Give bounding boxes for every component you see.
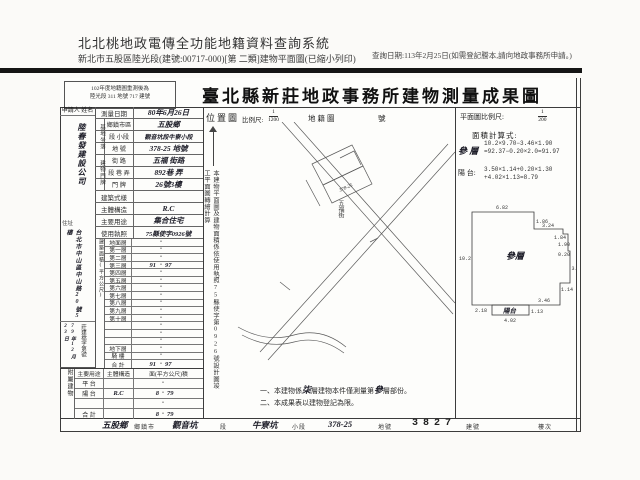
- annex-row: 陽 台 R.C 8 • 79: [75, 389, 203, 399]
- row-value: 75縣使字0926號: [133, 227, 203, 238]
- row-lane: 段 巷 弄 892巷 弄: [95, 167, 203, 179]
- floor-row: 第十層•: [105, 315, 203, 323]
- dim-top2: 3.24: [542, 223, 554, 229]
- row-value: R.C: [133, 203, 203, 214]
- row-structure: 主體構造 R.C: [95, 203, 203, 215]
- decimal-dot: •: [157, 323, 165, 328]
- document-title: 臺北縣新莊地政事務所建物測量成果圖: [172, 82, 572, 107]
- row-value: 80年6月26日: [133, 107, 203, 118]
- remark-line1: 102年度地籍圖重測後為: [65, 85, 175, 93]
- area-int: [131, 269, 157, 276]
- area-int: 91: [131, 262, 157, 269]
- bottom-id-strip: 五股鄉 鄉鎮市 觀音坑 段 牛寮坑 小段 378-25 地號 3827 建號 樓…: [60, 418, 580, 432]
- row-value: [133, 191, 203, 202]
- decimal-dot: •: [159, 401, 167, 406]
- lot-number-label: 地號: [378, 422, 392, 431]
- area-int: [131, 307, 157, 314]
- floor-level-label: 樓次: [538, 422, 552, 431]
- section-label: 段: [220, 422, 227, 431]
- screen: 北北桃地政電傳全功能地籍資料查詢系統 新北市五股區陸光段(建號:00717-00…: [0, 0, 640, 480]
- formula-line: +4.02×1.13=8.79: [484, 174, 552, 182]
- decimal-dot: •: [157, 240, 165, 245]
- row-value: 觀音坑段牛寮小段: [133, 131, 203, 142]
- receipt-block: 79年12月23日 莊建檔字第號: [60, 321, 95, 368]
- applicant-header: 申請人 姓名: [60, 107, 95, 116]
- calc-balcony-formula: 3.50×1.14+0.20×1.30 +4.02×1.13=8.79: [484, 166, 552, 182]
- row-survey-date: 測量日期 80年6月26日: [95, 107, 203, 119]
- query-info-line: 新北市五股區陸光段(建號:00717-000)[第 二類]建物平面圖(已縮小列印…: [78, 52, 356, 65]
- dim-bottom: 3.46: [538, 298, 550, 304]
- map-road-label: 五福街: [337, 200, 344, 219]
- decimal-dot: •: [157, 362, 165, 367]
- area-dec: 97: [165, 361, 203, 368]
- decimal-dot: •: [157, 285, 165, 290]
- separator-bar: [0, 68, 582, 73]
- area-int: [131, 300, 157, 307]
- subsection-label: 小段: [292, 422, 306, 431]
- remark-line2: 陸光段 311 地號 717 建號: [65, 93, 175, 101]
- note-text: 一、本建物係: [260, 387, 302, 395]
- panel-divider: [455, 107, 456, 418]
- north-arrow-icon: [209, 126, 217, 166]
- formula-line: 3.50×1.14+0.20×1.30: [484, 166, 552, 174]
- decimal-dot: •: [157, 331, 165, 336]
- applicant-name-value: 陸春發建設公司: [76, 123, 87, 219]
- scale-numerator: 1: [269, 109, 278, 117]
- transcription-note-vertical: 本建物平面圖及建物面積係依使用執照75縣使字第0926號設計圖竣工平面圖轉繪計算: [202, 170, 220, 394]
- decimal-dot: •: [159, 391, 167, 396]
- applicant-address-value: 台北市中山區中山路20號5樓: [64, 229, 82, 321]
- area-int: [131, 277, 157, 284]
- annex-use: 平 台: [75, 379, 103, 388]
- address-group-label: 建物門牌: [96, 156, 105, 190]
- annex-header-row: 主要用途 主體構造 面(平方公尺)積: [75, 369, 203, 379]
- township-label: 鄉鎮市: [134, 422, 155, 431]
- row-value: 26號3樓: [133, 179, 203, 190]
- dim-left: 10.2: [459, 256, 471, 262]
- dim-balcony-h: 1.13: [531, 309, 543, 315]
- area-int: [131, 239, 157, 246]
- applicant-label: 申請人: [62, 108, 80, 114]
- decimal-dot: •: [157, 300, 165, 305]
- floor-area-table: 建築面積(平方公尺) 地面層• 第一層• 第二層• 第三層91•97 第四層• …: [95, 239, 203, 368]
- section-value: 觀音坑: [172, 419, 198, 431]
- area-int: 91: [131, 360, 157, 368]
- row-value: 五福 街路: [133, 155, 203, 166]
- col-area: 面(平方公尺)積: [133, 369, 203, 378]
- area-int: [131, 315, 157, 322]
- row-value: 892巷 弄: [133, 167, 203, 178]
- row-label: 主要用途: [95, 216, 133, 226]
- receipt-number-label: 莊建檔字第號: [79, 324, 87, 366]
- plan-room-label: 參層: [506, 251, 526, 261]
- applicant-sidebar: 申請人 姓名 陸春發建設公司 住址 台北市中山區中山路20號5樓 79年12月2…: [60, 107, 96, 368]
- row-label: 段 巷 弄: [105, 168, 133, 177]
- decimal-dot: •: [157, 247, 165, 252]
- area-int: [133, 379, 159, 388]
- system-title: 北北桃地政電傳全功能地籍資料查詢系統: [78, 33, 330, 52]
- applicant-address-label: 住址: [62, 219, 73, 227]
- floor-area-group-label: 建築面積(平方公尺): [95, 239, 105, 368]
- query-date: 查詢日期:113年2月25日(如需登記謄本,請向地政事務所申請。): [372, 50, 572, 61]
- info-rows: 基地坐落 建物門牌 測量日期 80年6月26日 鄉鎮市區 五股鄉 段 小段 觀音…: [95, 107, 203, 239]
- calc-floor-formula: 10.2×9.70−3.46×1.90 =92.37−0.20×2.0=91.9…: [484, 140, 560, 156]
- row-street: 街 路 五福 街路: [95, 155, 203, 167]
- row-label: 主體構造: [95, 204, 133, 214]
- row-style: 建築式樣: [95, 191, 203, 203]
- area-int: [131, 247, 157, 254]
- row-label: 地 號: [105, 144, 133, 153]
- doc-right-border: [576, 78, 581, 432]
- decimal-dot: •: [157, 346, 165, 351]
- decimal-dot: •: [157, 270, 165, 275]
- decimal-dot: •: [157, 353, 165, 358]
- scale-denominator: 200: [538, 117, 546, 124]
- decimal-dot: •: [157, 308, 165, 313]
- floor-row: •: [105, 330, 203, 338]
- calc-balcony-name: 陽 台:: [458, 168, 476, 178]
- note-hand-floor-no: 參: [374, 385, 383, 395]
- decimal-dot: •: [159, 412, 167, 417]
- area-int: [133, 399, 159, 408]
- decimal-dot: •: [157, 263, 165, 268]
- decimal-dot: •: [157, 338, 165, 343]
- col-structure: 主體構造: [103, 369, 133, 378]
- area-int: [131, 353, 157, 360]
- receipt-date: 79年12月23日: [62, 324, 76, 366]
- site-group-label: 基地坐落: [96, 120, 105, 154]
- row-value: 378-25 地號: [133, 143, 203, 154]
- area-int: [131, 345, 157, 352]
- north-arrow-shaft: [213, 130, 214, 166]
- dim-top: 6.82: [496, 205, 508, 211]
- decimal-dot: •: [157, 255, 165, 260]
- dim-right1: 1.90: [558, 242, 570, 248]
- formula-line: =92.37−0.20×2.0=91.97: [484, 148, 560, 156]
- building-info-table: 申請人 姓名 陸春發建設公司 住址 台北市中山區中山路20號5樓 79年12月2…: [60, 107, 204, 418]
- area-dec: 97: [165, 262, 203, 269]
- row-label: 段 小段: [105, 132, 133, 141]
- plan-scale-fraction: 1 200: [538, 109, 547, 123]
- row-label: 門 牌: [105, 180, 133, 189]
- decimal-dot: •: [157, 316, 165, 321]
- dim-jog: 1.84: [554, 235, 566, 241]
- dim-right2: 3.50: [572, 266, 577, 272]
- annex-row: 平 台 •: [75, 379, 203, 389]
- note-text: 層建物本件僅測量第: [311, 387, 374, 395]
- row-township: 鄉鎮市區 五股鄉: [95, 119, 203, 131]
- annex-building-table: 附屬建物 主要用途 主體構造 面(平方公尺)積 平 台 • 陽 台 R.C 8: [60, 368, 203, 419]
- annex-row: •: [75, 399, 203, 409]
- area-dec: 79: [167, 411, 203, 418]
- note-line-2: 二、本成果表以建物登記為限。: [260, 397, 578, 409]
- map-lot-label: 378-25: [339, 183, 354, 194]
- row-label: 鄉鎮市區: [105, 120, 133, 129]
- area-int: [131, 330, 157, 337]
- area-int: [131, 254, 157, 261]
- area-int: [131, 322, 157, 329]
- plan-scale-label: 平面圖比例尺:: [460, 112, 504, 122]
- annex-structure: R.C: [103, 389, 133, 398]
- annex-structure: [103, 379, 133, 388]
- dim-right-small: 0.20: [558, 252, 570, 258]
- annex-use: 陽 台: [75, 389, 103, 398]
- resurvey-remark-box: 102年度地籍圖重測後為 陸光段 311 地號 717 建號: [64, 81, 176, 109]
- location-map-sketch: 378-25 五福街: [220, 122, 455, 403]
- floor-row-total: 合 計91•97: [105, 360, 203, 368]
- dim-balcony-w: 4.02: [504, 318, 516, 324]
- scale-numerator: 1: [538, 109, 547, 117]
- lot-number-value: 378-25: [328, 419, 352, 429]
- row-label: 使用執照: [95, 228, 133, 238]
- row-usage: 主要用途 集合住宅: [95, 215, 203, 227]
- row-label: 街 路: [105, 156, 133, 165]
- township-value: 五股鄉: [102, 419, 128, 431]
- building-number-stamp: 3827: [412, 418, 456, 429]
- decimal-dot: •: [157, 293, 165, 298]
- row-label: 建築式樣: [95, 192, 133, 202]
- area-int: 8: [133, 389, 159, 398]
- formula-line: 10.2×9.70−3.46×1.90: [484, 140, 560, 148]
- row-door: 門 牌 26號3樓: [95, 179, 203, 191]
- note-line-1: 一、本建物係柒層建物本件僅測量第參層部份。: [260, 384, 578, 397]
- note-hand-floors: 柒: [302, 385, 311, 395]
- plan-balcony-label: 陽台: [503, 307, 517, 315]
- dim-right3: 1.14: [561, 287, 573, 293]
- map-scale-fraction: 1 1200: [268, 109, 279, 123]
- floor-plan-drawing: 6.82 1.86 3.24 1.84 1.90 0.20 3.50 1.14 …: [458, 196, 576, 332]
- subsection-value: 牛寮坑: [252, 419, 278, 431]
- note-text: 層部份。: [383, 387, 411, 395]
- row-value: 五股鄉: [133, 119, 203, 130]
- dim-bottom-left: 2.18: [475, 308, 487, 314]
- area-int: [131, 284, 157, 291]
- decimal-dot: •: [157, 278, 165, 283]
- area-dec: 79: [167, 390, 203, 397]
- measurement-notes: 一、本建物係柒層建物本件僅測量第參層部份。 二、本成果表以建物登記為限。: [260, 384, 578, 409]
- decimal-dot: •: [159, 381, 167, 386]
- row-section: 段 小段 觀音坑段牛寮小段: [95, 131, 203, 143]
- row-label: 測量日期: [95, 108, 133, 118]
- annex-group-label: 附屬建物: [60, 369, 75, 419]
- row-value: 集合住宅: [133, 215, 203, 226]
- calc-floor-name: 參 層: [458, 144, 478, 157]
- building-number-label: 建號: [466, 422, 480, 431]
- area-int: [131, 292, 157, 299]
- annex-structure: [103, 399, 133, 408]
- floor-row: •: [105, 322, 203, 330]
- col-use: 主要用途: [75, 369, 103, 378]
- row-lot: 地 號 378-25 地號: [95, 143, 203, 155]
- floor-label: 第十層: [105, 314, 131, 323]
- survey-document: 102年度地籍圖重測後為 陸光段 311 地號 717 建號 臺北縣新莊地政事務…: [60, 78, 580, 432]
- area-int: [131, 338, 157, 345]
- applicant-name-label: 姓名: [81, 108, 93, 114]
